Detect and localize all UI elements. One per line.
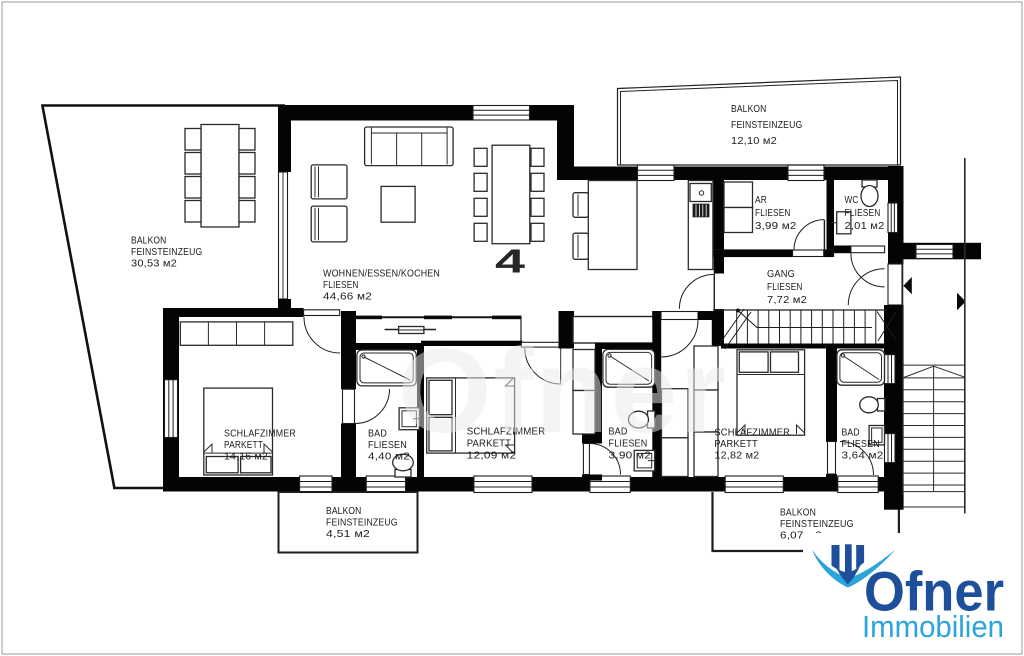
svg-text:FLIESEN: FLIESEN: [323, 279, 359, 291]
svg-text:Ofner: Ofner: [398, 324, 728, 458]
svg-text:GANG: GANG: [767, 268, 795, 280]
svg-text:BAD: BAD: [368, 428, 387, 440]
svg-text:FLIESEN: FLIESEN: [767, 281, 803, 293]
svg-text:14,16 м2: 14,16 м2: [224, 451, 268, 463]
svg-text:4,51 м2: 4,51 м2: [326, 528, 370, 540]
svg-text:FLIESEN: FLIESEN: [845, 207, 881, 219]
svg-text:BAD: BAD: [842, 427, 860, 439]
svg-text:12,10 м2: 12,10 м2: [731, 135, 777, 147]
svg-text:7,72 м2: 7,72 м2: [767, 294, 807, 306]
svg-text:AR: AR: [755, 194, 767, 206]
svg-text:FEINSTEINZEUG: FEINSTEINZEUG: [780, 518, 854, 530]
svg-text:Immobilien: Immobilien: [862, 609, 1004, 644]
svg-text:FEINSTEINZEUG: FEINSTEINZEUG: [326, 517, 398, 529]
svg-text:44,66 м2: 44,66 м2: [323, 291, 372, 303]
svg-text:3,99 м2: 3,99 м2: [755, 220, 797, 232]
svg-text:FEINSTEINZEUG: FEINSTEINZEUG: [731, 119, 802, 131]
svg-text:WC: WC: [845, 194, 859, 206]
svg-text:WOHNEN/ESSEN/KOCHEN: WOHNEN/ESSEN/KOCHEN: [323, 268, 440, 280]
svg-text:BALKON: BALKON: [326, 505, 362, 517]
svg-text:4: 4: [495, 243, 526, 280]
svg-text:BALKON: BALKON: [780, 507, 816, 519]
svg-text:SCHLAFZIMMER: SCHLAFZIMMER: [224, 428, 296, 440]
svg-text:FEINSTEINZEUG: FEINSTEINZEUG: [131, 246, 202, 258]
svg-text:2,01 м2: 2,01 м2: [845, 220, 885, 232]
svg-text:FLIESEN: FLIESEN: [755, 207, 791, 219]
svg-text:BALKON: BALKON: [731, 103, 767, 115]
svg-text:BALKON: BALKON: [131, 235, 167, 247]
svg-text:FLIESEN: FLIESEN: [842, 438, 880, 450]
svg-text:PARKETT: PARKETT: [224, 439, 263, 451]
svg-text:30,53 м2: 30,53 м2: [131, 257, 177, 269]
svg-text:3,64 м2: 3,64 м2: [842, 450, 884, 462]
